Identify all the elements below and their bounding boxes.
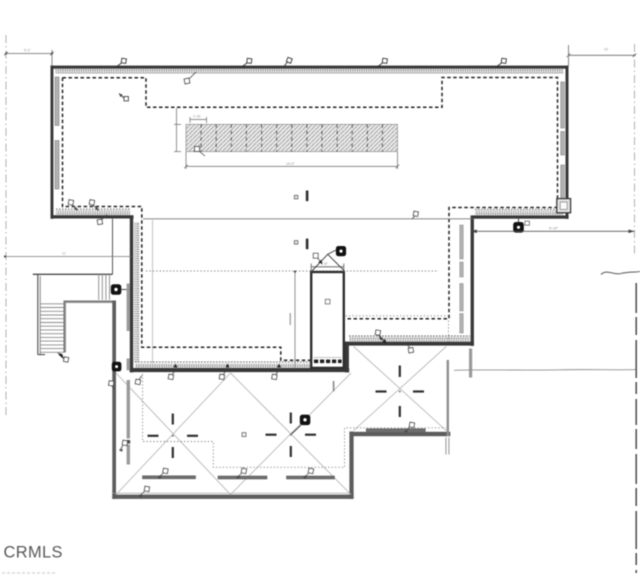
svg-text:16': 16': [604, 48, 609, 52]
svg-text:9'-10": 9'-10": [549, 227, 559, 231]
svg-text:14'-0": 14'-0": [286, 162, 295, 166]
svg-text:5'-0": 5'-0": [24, 49, 32, 53]
svg-text:2'-8": 2'-8": [321, 262, 329, 266]
svg-text:CRMLS: CRMLS: [4, 544, 63, 562]
svg-text:1'-10: 1'-10: [193, 115, 201, 119]
svg-text:11': 11': [62, 252, 67, 256]
